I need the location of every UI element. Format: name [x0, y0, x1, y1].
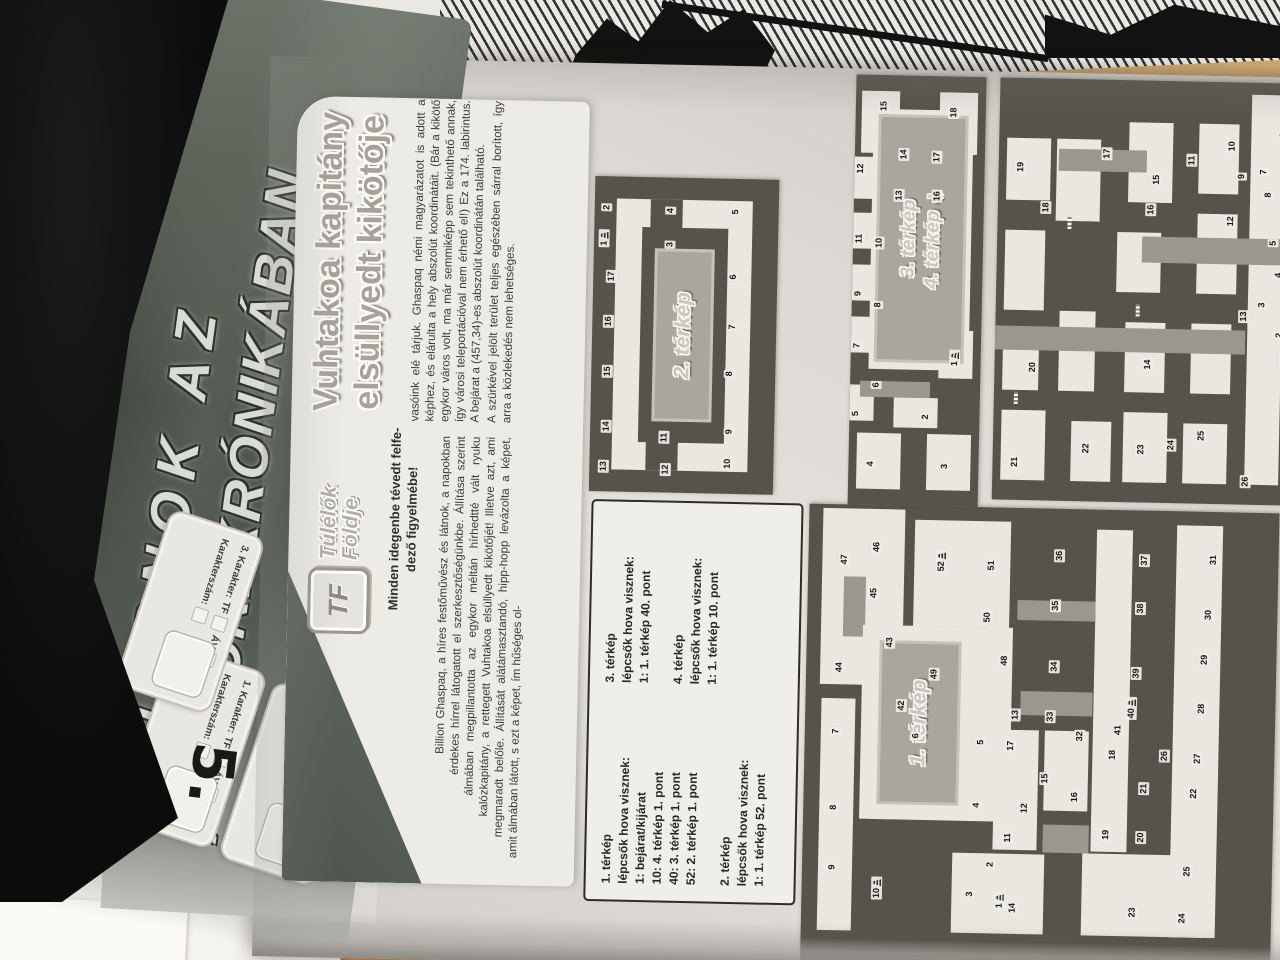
map-point-16: 16: [1145, 203, 1156, 216]
map-point-35: 35: [1050, 599, 1061, 612]
map-point-37: 37: [1139, 554, 1150, 567]
map-point-10: 10: [1227, 140, 1238, 153]
map-point-39: 39: [1130, 667, 1141, 680]
map-point-23: 23: [1135, 443, 1146, 456]
map-point-5: 5: [1268, 239, 1279, 247]
map-point-21: 21: [1009, 455, 1020, 468]
map-point-6: 6: [910, 732, 921, 740]
map-point-1: 1: [949, 349, 960, 367]
map-point-31: 31: [1208, 553, 1219, 566]
map-point-11: 11: [658, 431, 669, 444]
map-point-12: 12: [1019, 802, 1030, 815]
map-point-32: 32: [1074, 730, 1085, 743]
map-point-10: 10: [871, 876, 882, 899]
map-point-51: 51: [986, 559, 997, 572]
map-point-18: 18: [1040, 201, 1051, 214]
legend-column-2: 3. térkép lépcsők hova visznek: 1: 1. té…: [602, 556, 791, 687]
map-point-9: 9: [826, 863, 837, 871]
map-point-48: 48: [999, 654, 1010, 667]
map-point-17: 17: [931, 151, 942, 164]
map-point-27: 27: [1192, 752, 1203, 765]
map-point-2: 2: [601, 203, 612, 211]
map-point-13: 13: [1010, 708, 1021, 721]
map-point-16: 16: [931, 190, 942, 203]
map-point-12: 12: [855, 162, 866, 175]
map-point-11: 11: [854, 232, 865, 245]
map-point-25: 25: [1181, 865, 1192, 878]
map-4-terkep: 1234567891011121314151617181920212223242…: [992, 77, 1280, 505]
map-point-2: 2: [984, 860, 995, 868]
map-point-18: 18: [1107, 748, 1118, 761]
map-point-17: 17: [1101, 147, 1112, 160]
map-point-43: 43: [884, 636, 895, 649]
map-point-14: 14: [898, 148, 909, 161]
map-point-12: 12: [1225, 215, 1236, 228]
map-point-11: 11: [1002, 831, 1013, 844]
title-line2: elsüllyedt kikötője: [347, 97, 395, 428]
map-point-20: 20: [1135, 831, 1146, 844]
stairs-icon: [937, 551, 946, 560]
map-point-18: 18: [948, 106, 959, 119]
map-point-30: 30: [1203, 608, 1214, 621]
map-point-46: 46: [871, 540, 882, 553]
map-point-1: 1: [994, 892, 1005, 910]
magazine-page: KUPONOK AZ ALANORI KRÓNIKÁBAN 1. Karakte…: [252, 56, 1280, 960]
map-1-terkep: 1. térkép 123456789101112131415161718192…: [800, 504, 1280, 960]
title-line1: Vuhtakoa kapitány: [305, 96, 353, 427]
map-point-5: 5: [975, 738, 986, 746]
map-point-4: 4: [971, 801, 982, 809]
map-point-41: 41: [1112, 723, 1123, 736]
map-point-8: 8: [872, 301, 883, 309]
map-point-26: 26: [1159, 749, 1170, 762]
map-point-28: 28: [1196, 702, 1207, 715]
tulelok-foldje-logo: TF Túlélők Földje: [293, 418, 387, 635]
article-title: Vuhtakoa kapitány elsüllyedt kikötője: [305, 96, 395, 428]
article-column-1: Billion Ghaspaq, a híres festőművész és …: [430, 436, 579, 877]
stairs-icon: [1127, 698, 1136, 707]
map-point-16: 16: [603, 315, 614, 328]
map-point-22: 22: [1188, 787, 1199, 800]
article-column-2: vasóink elé tárjuk. Ghaspaq némi magyará…: [407, 99, 590, 425]
map-point-42: 42: [896, 699, 907, 712]
stairs-icon: [995, 893, 1004, 902]
map-point-3: 3: [1256, 301, 1267, 309]
map-point-7: 7: [851, 341, 862, 349]
map-point-26: 26: [1240, 475, 1251, 488]
map-point-1: 1: [598, 229, 609, 247]
map-point-13: 13: [893, 189, 904, 202]
map-point-3: 3: [964, 890, 975, 898]
charnum-box: [191, 606, 210, 625]
map-point-2: 2: [920, 413, 931, 421]
map-point-9: 9: [1236, 172, 1247, 180]
map-point-40: 40: [1126, 697, 1137, 720]
map-point-6: 6: [871, 381, 882, 389]
map-point-4: 4: [665, 206, 676, 214]
map-point-17: 17: [606, 270, 617, 283]
map-2-terkep: 2. térkép 1234567891011121314151617: [585, 176, 817, 496]
map-point-17: 17: [1005, 739, 1016, 752]
stairs-icon: [950, 351, 959, 360]
map-3-terkep: 3. térkép 4. térkép ➔ 123456789101112131…: [848, 74, 987, 507]
map-point-19: 19: [1015, 160, 1026, 173]
legend-column-1: 1. térkép lépcsők hova visznek: 1: bejár…: [598, 682, 788, 887]
map-point-20: 20: [1027, 361, 1038, 374]
map-point-15: 15: [1151, 173, 1162, 186]
map-point-8: 8: [828, 803, 839, 811]
map-point-4: 4: [865, 460, 876, 468]
map-point-25: 25: [1195, 429, 1206, 442]
map-point-22: 22: [1080, 442, 1091, 455]
map-point-47: 47: [839, 553, 850, 566]
map-point-6: 6: [728, 273, 739, 281]
tf-checkbox: [210, 615, 229, 634]
map-point-52: 52: [936, 550, 947, 573]
logo-name-line2: Földje: [339, 486, 363, 560]
coupon-field-tf: TF: [218, 600, 232, 615]
map-point-21: 21: [1138, 782, 1149, 795]
map-point-7: 7: [1258, 168, 1269, 176]
map-point-2: 2: [1274, 331, 1280, 339]
map-point-33: 33: [1045, 710, 1056, 723]
map-point-11: 11: [1186, 154, 1197, 167]
map-point-10: 10: [722, 457, 733, 470]
logo-name-line1: Túlélők: [317, 486, 341, 560]
desk-photo-scene: KUPONOK AZ ALANORI KRÓNIKÁBAN 1. Karakte…: [0, 0, 1280, 960]
map-point-7: 7: [830, 727, 841, 735]
map-point-44: 44: [834, 661, 845, 674]
map-point-3: 3: [939, 462, 950, 470]
map-point-34: 34: [1049, 660, 1060, 673]
map-point-14: 14: [1142, 358, 1153, 371]
map-point-10: 10: [873, 236, 884, 249]
map-point-4: 4: [1273, 271, 1280, 279]
map-point-13: 13: [598, 460, 609, 473]
map-point-8: 8: [724, 370, 735, 378]
map-point-16: 16: [1069, 791, 1080, 804]
map-point-36: 36: [1054, 549, 1065, 562]
map-point-14: 14: [601, 420, 612, 433]
handwritten-mark: 5.: [174, 739, 249, 809]
tf-logo-icon: TF: [307, 567, 370, 634]
map-point-49: 49: [928, 668, 939, 681]
map-point-8: 8: [1263, 191, 1274, 199]
map-point-38: 38: [1135, 602, 1146, 615]
map-point-9: 9: [723, 428, 734, 436]
stairs-icon: [872, 878, 881, 887]
map-point-24: 24: [1176, 912, 1187, 925]
map-point-7: 7: [727, 323, 738, 331]
map-point-5: 5: [730, 208, 741, 216]
stairs-icon: [600, 231, 609, 240]
map-point-23: 23: [1126, 906, 1137, 919]
notice-text: Minden idegenbe tévedt felfe- dező figye…: [385, 399, 424, 640]
map-point-19: 19: [1100, 828, 1111, 841]
map-point-50: 50: [982, 611, 993, 624]
map-point-12: 12: [660, 463, 671, 476]
map-point-15: 15: [878, 99, 889, 112]
article-panel: TF Túlélők Földje Vuhtakoa kapitány elsü…: [282, 96, 590, 887]
map-point-15: 15: [1039, 772, 1050, 785]
map-point-3: 3: [664, 240, 675, 248]
map-point-5: 5: [850, 409, 861, 417]
map-point-24: 24: [1165, 439, 1176, 452]
map-point-13: 13: [1238, 310, 1249, 323]
map-point-15: 15: [602, 365, 613, 378]
map-point-29: 29: [1199, 653, 1210, 666]
map-point-9: 9: [852, 289, 863, 297]
map-point-14: 14: [1007, 901, 1018, 914]
map-point-45: 45: [868, 586, 879, 599]
stairs-legend-box: 1. térkép lépcsők hova visznek: 1: bejár…: [583, 499, 803, 905]
